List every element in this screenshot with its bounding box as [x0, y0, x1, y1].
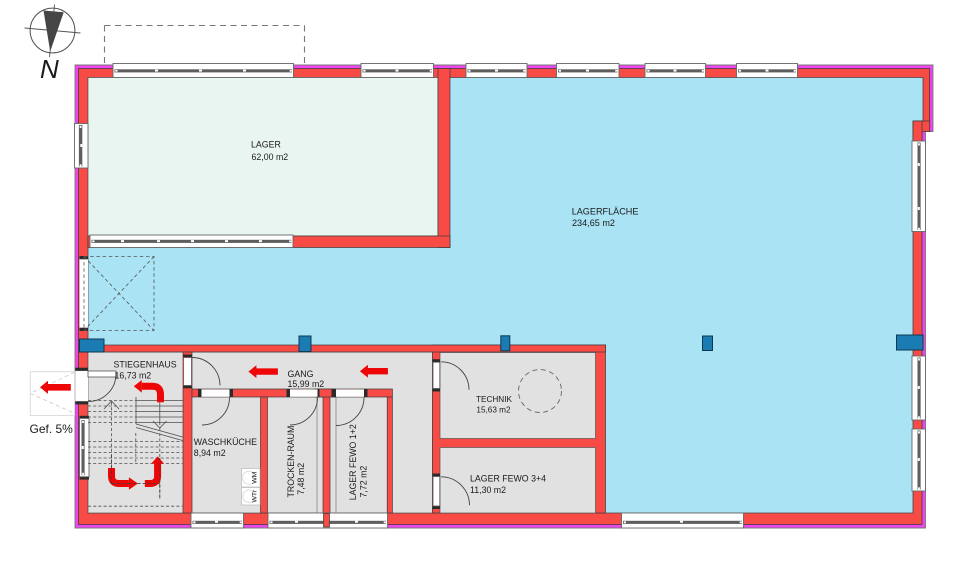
svg-text:TROCKEN-RAUM: TROCKEN-RAUM [286, 426, 296, 498]
svg-text:62,00 m2: 62,00 m2 [252, 152, 289, 162]
svg-text:7,48 m2: 7,48 m2 [296, 463, 306, 495]
svg-text:11,30 m2: 11,30 m2 [470, 485, 506, 495]
svg-text:WASCHKÜCHE: WASCHKÜCHE [194, 437, 257, 447]
svg-text:GANG: GANG [288, 369, 314, 379]
svg-text:WTr: WTr [252, 489, 259, 502]
svg-text:LAGER: LAGER [251, 140, 281, 150]
svg-text:LAGER FEWO 1+2: LAGER FEWO 1+2 [348, 424, 358, 500]
svg-text:LAGERFLÄCHE: LAGERFLÄCHE [572, 207, 639, 217]
svg-text:15,63 m2: 15,63 m2 [476, 406, 511, 415]
svg-text:LAGER FEWO 3+4: LAGER FEWO 3+4 [470, 474, 546, 484]
svg-text:WM: WM [252, 471, 259, 483]
svg-text:TECHNIK: TECHNIK [476, 395, 512, 404]
svg-text:15,99 m2: 15,99 m2 [288, 379, 325, 389]
svg-text:8,94 m2: 8,94 m2 [194, 448, 226, 458]
svg-text:16,73 m2: 16,73 m2 [115, 370, 152, 380]
svg-text:7,72 m2: 7,72 m2 [359, 466, 369, 498]
svg-text:234,65 m2: 234,65 m2 [572, 218, 615, 228]
svg-text:N: N [40, 54, 59, 84]
svg-text:STIEGENHAUS: STIEGENHAUS [114, 359, 177, 369]
svg-text:Gef. 5%: Gef. 5% [30, 422, 74, 436]
